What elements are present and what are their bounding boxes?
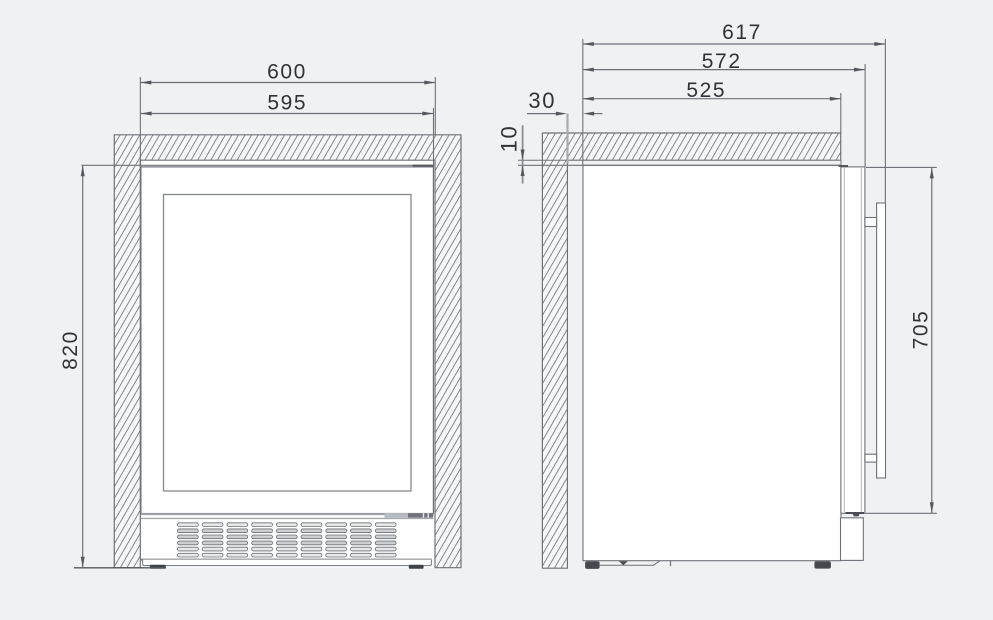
svg-text:600: 600 bbox=[267, 61, 307, 84]
svg-text:10: 10 bbox=[497, 125, 522, 153]
svg-text:820: 820 bbox=[59, 330, 82, 370]
svg-text:30: 30 bbox=[528, 88, 556, 113]
svg-text:572: 572 bbox=[702, 50, 742, 73]
svg-text:525: 525 bbox=[686, 79, 726, 102]
svg-text:617: 617 bbox=[722, 21, 762, 44]
svg-text:595: 595 bbox=[267, 91, 307, 114]
svg-text:705: 705 bbox=[910, 310, 933, 350]
